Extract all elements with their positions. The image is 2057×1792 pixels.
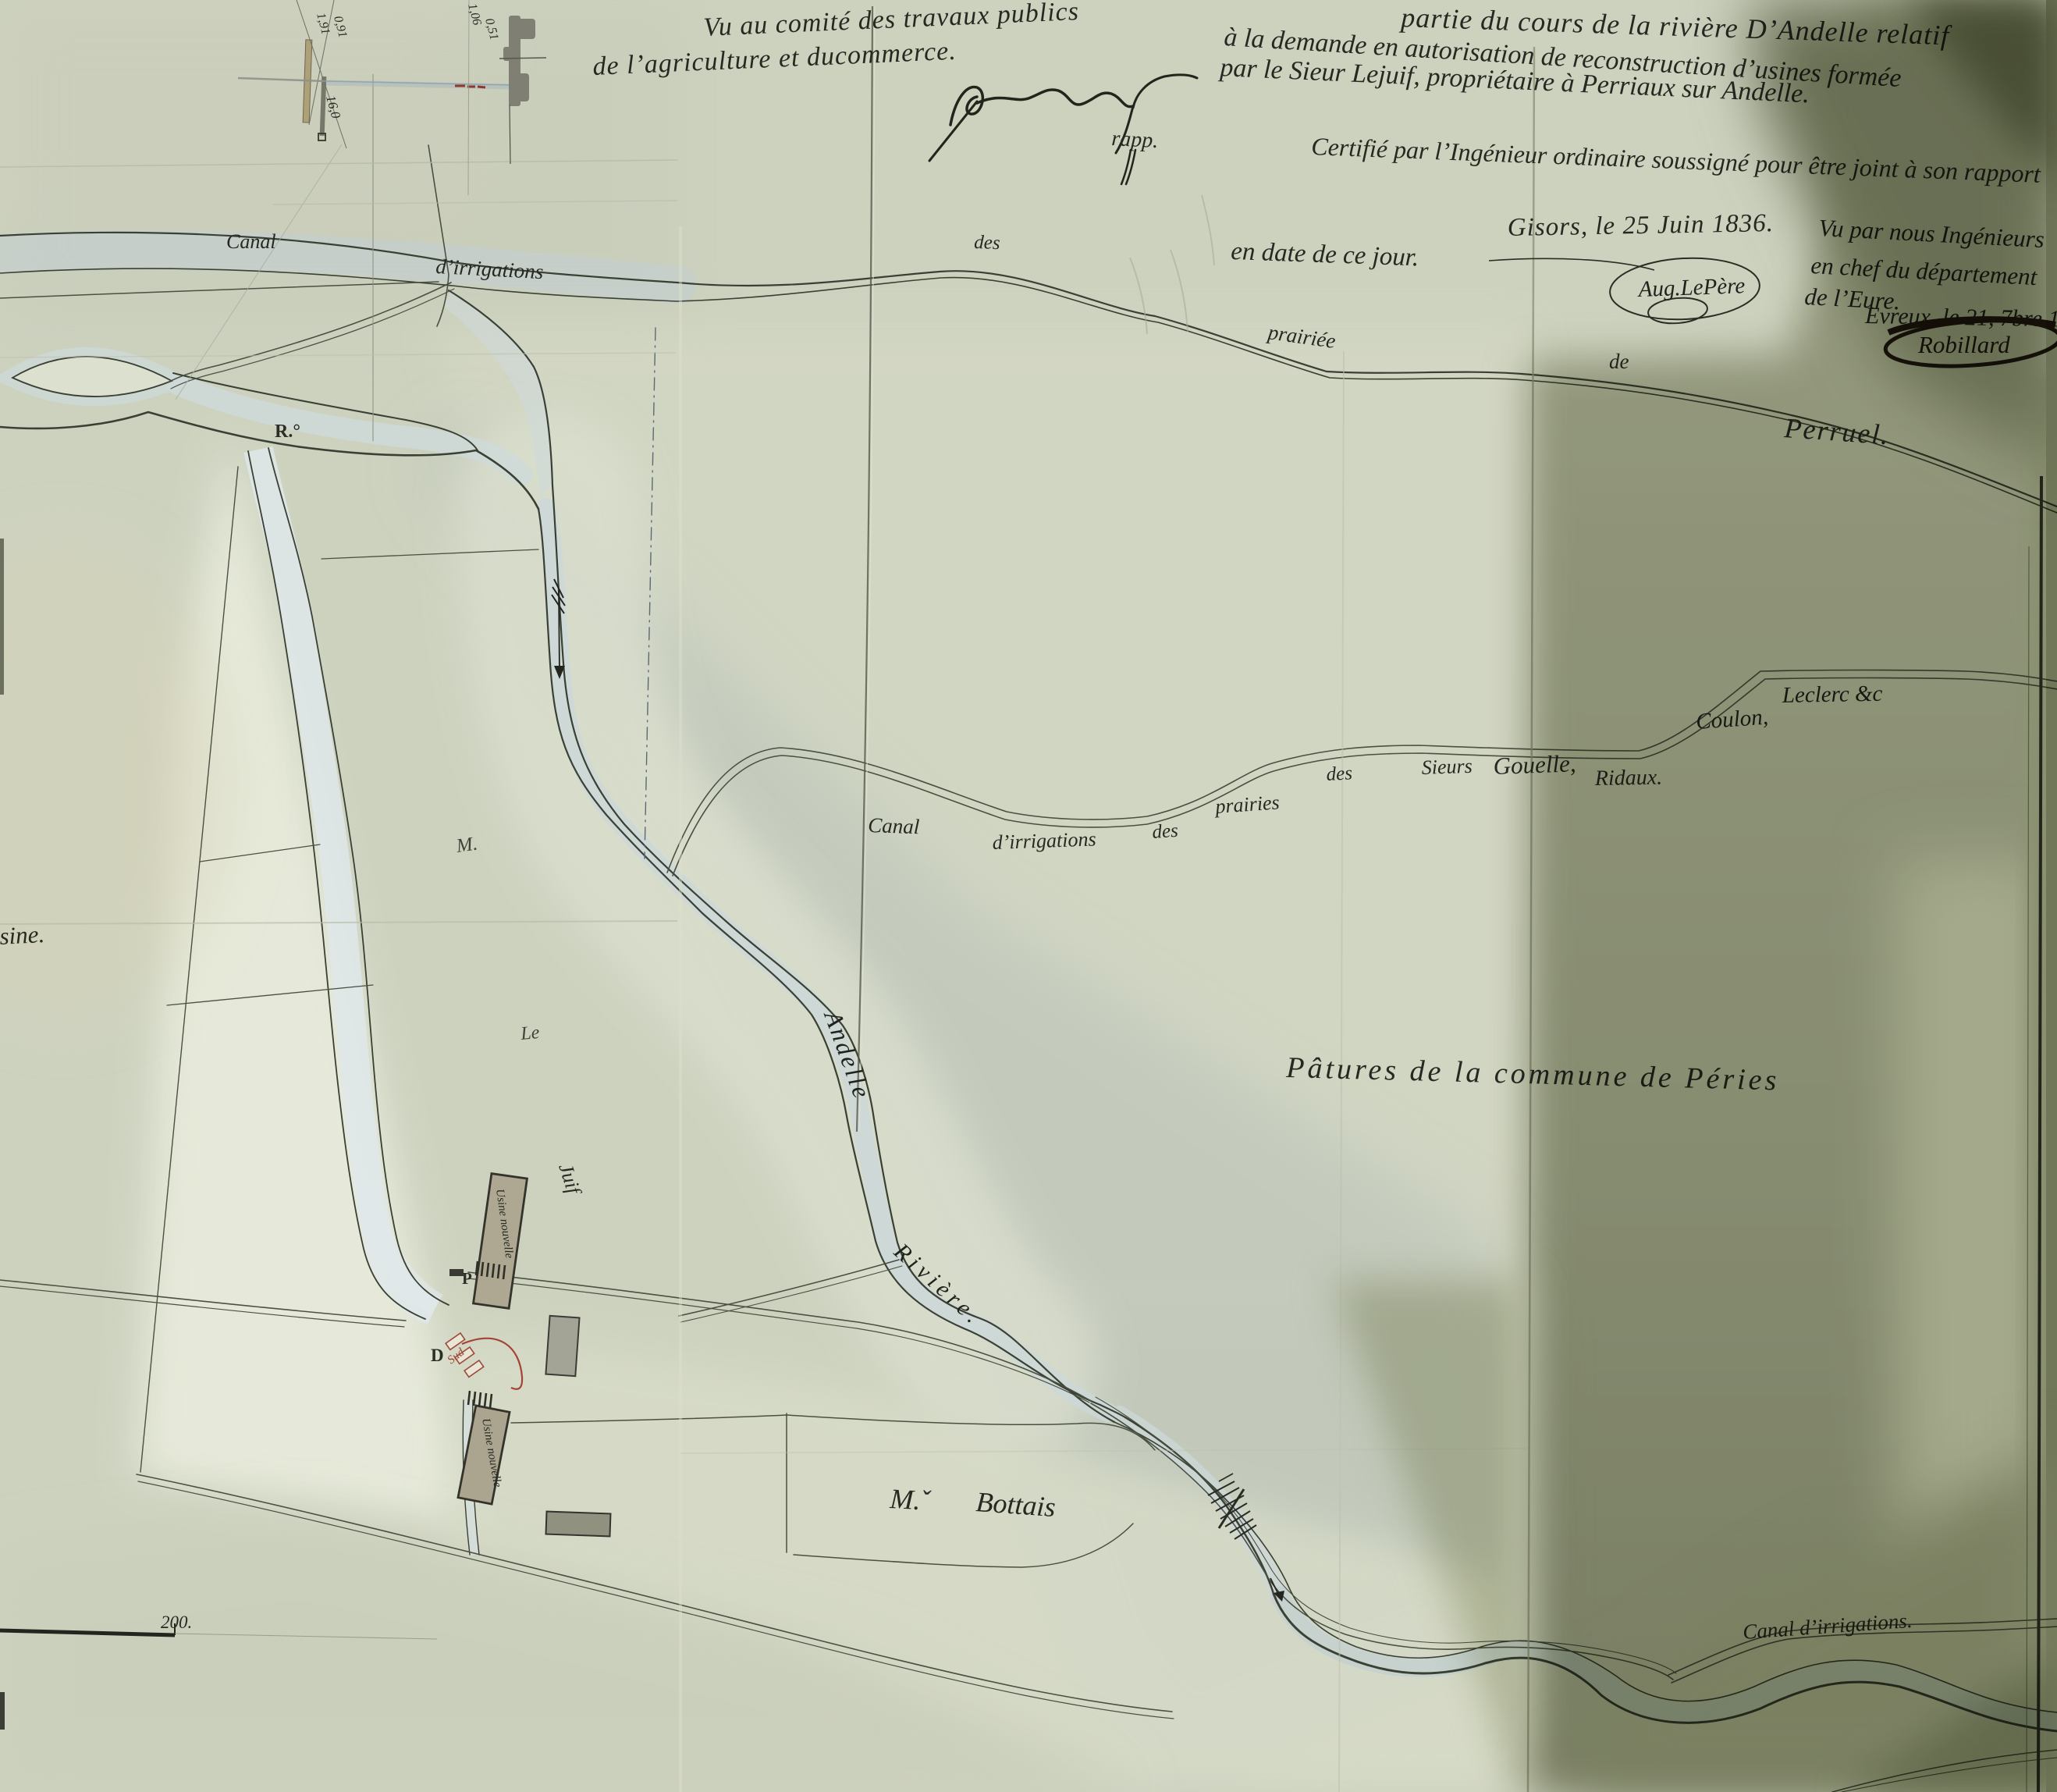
svg-text:Juif: Juif bbox=[554, 1161, 586, 1200]
svg-text:des: des bbox=[1326, 763, 1353, 785]
svg-text:Andelle: Andelle bbox=[819, 1005, 877, 1104]
svg-text:0,91: 0,91 bbox=[331, 15, 350, 39]
svg-text:R.°: R.° bbox=[275, 421, 300, 442]
svg-text:16,0: 16,0 bbox=[323, 94, 343, 120]
svg-text:Vu au comité des travaux publi: Vu au comité des travaux publics bbox=[703, 0, 1080, 42]
svg-text:Sieurs: Sieurs bbox=[1421, 755, 1473, 779]
svg-text:rapp.: rapp. bbox=[1111, 126, 1159, 153]
svg-text:M.: M. bbox=[454, 833, 479, 857]
svg-text:1,91: 1,91 bbox=[314, 12, 332, 36]
svg-text:200.: 200. bbox=[161, 1612, 192, 1632]
svg-text:Canal: Canal bbox=[226, 230, 276, 253]
svg-text:0,51: 0,51 bbox=[482, 17, 501, 41]
svg-text:sine.: sine. bbox=[0, 920, 45, 950]
svg-text:1,06: 1,06 bbox=[465, 2, 484, 27]
svg-text:Canal: Canal bbox=[868, 813, 920, 838]
svg-text:Aug.LePère: Aug.LePère bbox=[1636, 273, 1746, 302]
svg-text:en date de ce jour.: en date de ce jour. bbox=[1231, 237, 1419, 272]
svg-text:des: des bbox=[974, 232, 1000, 254]
svg-text:prairies: prairies bbox=[1213, 791, 1280, 818]
svg-text:Bottais: Bottais bbox=[975, 1486, 1057, 1523]
svg-text:prairiée: prairiée bbox=[1265, 320, 1337, 353]
svg-text:M.ˇ: M.ˇ bbox=[889, 1483, 933, 1516]
svg-text:P: P bbox=[462, 1269, 472, 1288]
svg-text:Le: Le bbox=[519, 1022, 541, 1044]
svg-text:Gisors, le 25 Juin 1836.: Gisors, le 25 Juin 1836. bbox=[1508, 209, 1775, 242]
svg-text:d’irrigations: d’irrigations bbox=[992, 827, 1096, 854]
svg-text:D: D bbox=[431, 1346, 444, 1365]
svg-text:Sud: Sud bbox=[446, 1346, 467, 1367]
svg-text:des: des bbox=[1152, 820, 1179, 843]
svg-text:de l’agriculture et ducommerce: de l’agriculture et ducommerce. bbox=[592, 37, 957, 81]
